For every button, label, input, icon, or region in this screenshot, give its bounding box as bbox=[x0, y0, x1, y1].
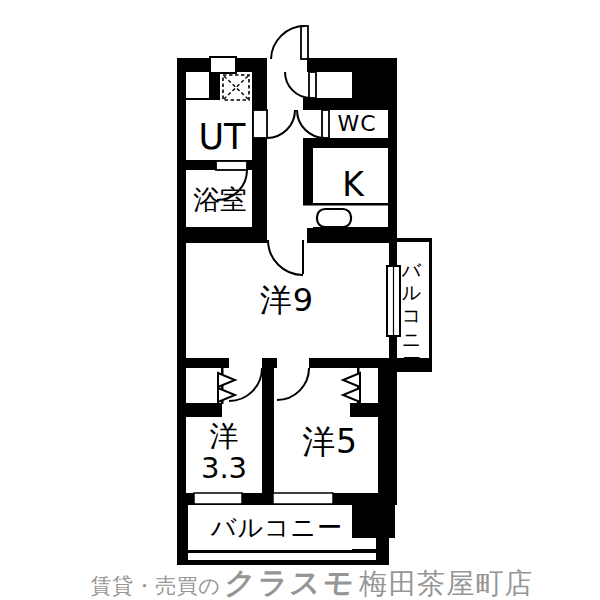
entrance-closet-floor bbox=[283, 72, 352, 98]
western5-door-opening bbox=[277, 358, 309, 368]
floorplan-canvas: UT 浴室 WC K 洋9 洋 3.3 洋5 バルコニー バルコニー 賃貸・売買… bbox=[0, 0, 600, 600]
room-label-western33-line2: 3.3 bbox=[201, 452, 247, 484]
footer-branch-name: 梅田茶屋町店 bbox=[359, 565, 533, 600]
footer-brand-line: 賃貸・売買の クラスモ 梅田茶屋町店 bbox=[91, 563, 533, 600]
room-label-balcony-right: バルコニー bbox=[403, 249, 422, 350]
wc-door-leaf bbox=[322, 110, 329, 138]
western33-door-opening bbox=[229, 358, 262, 368]
western5-balcony-window bbox=[273, 493, 333, 504]
entrance-opening bbox=[267, 58, 307, 72]
entrance-closet-door-leaf bbox=[309, 72, 316, 98]
footer-brand-logo: クラスモ bbox=[222, 563, 357, 600]
room-label-western9: 洋9 bbox=[260, 284, 314, 316]
kitchen-sink bbox=[317, 209, 351, 227]
room-label-bathroom: 浴室 bbox=[193, 186, 247, 213]
washer-dashed-box bbox=[223, 75, 249, 100]
footer-prefix-text: 賃貸・売買の bbox=[91, 572, 221, 600]
room-label-kitchen: K bbox=[342, 168, 364, 201]
room-label-ut: UT bbox=[199, 120, 246, 155]
bottom-right-wall-stub bbox=[352, 505, 395, 538]
washer-box-outline bbox=[223, 75, 249, 100]
bathroom-door-leaf bbox=[216, 161, 247, 170]
kitchen-counter-pass bbox=[303, 205, 313, 228]
room-label-wc: WC bbox=[337, 113, 376, 135]
western33-balcony-window bbox=[194, 493, 242, 504]
room-label-western33: 洋 3.3 bbox=[201, 420, 247, 485]
right-closet-wall-stub bbox=[350, 403, 383, 417]
room-label-balcony-bottom: バルコニー bbox=[211, 515, 343, 540]
left-closet-wall-stub bbox=[184, 403, 222, 417]
meter-box bbox=[210, 57, 236, 73]
entrance-door-leaf bbox=[301, 26, 308, 59]
room-label-western33-line1: 洋 bbox=[201, 420, 247, 452]
wall-niche bbox=[186, 72, 209, 98]
ut-door-leaf bbox=[253, 110, 267, 138]
left-wall-lower bbox=[177, 505, 188, 564]
balcony-right-post bbox=[376, 538, 389, 565]
room-label-western5: 洋5 bbox=[302, 425, 358, 458]
western9-door-opening bbox=[267, 228, 307, 243]
entrance-door-arc bbox=[271, 26, 305, 59]
